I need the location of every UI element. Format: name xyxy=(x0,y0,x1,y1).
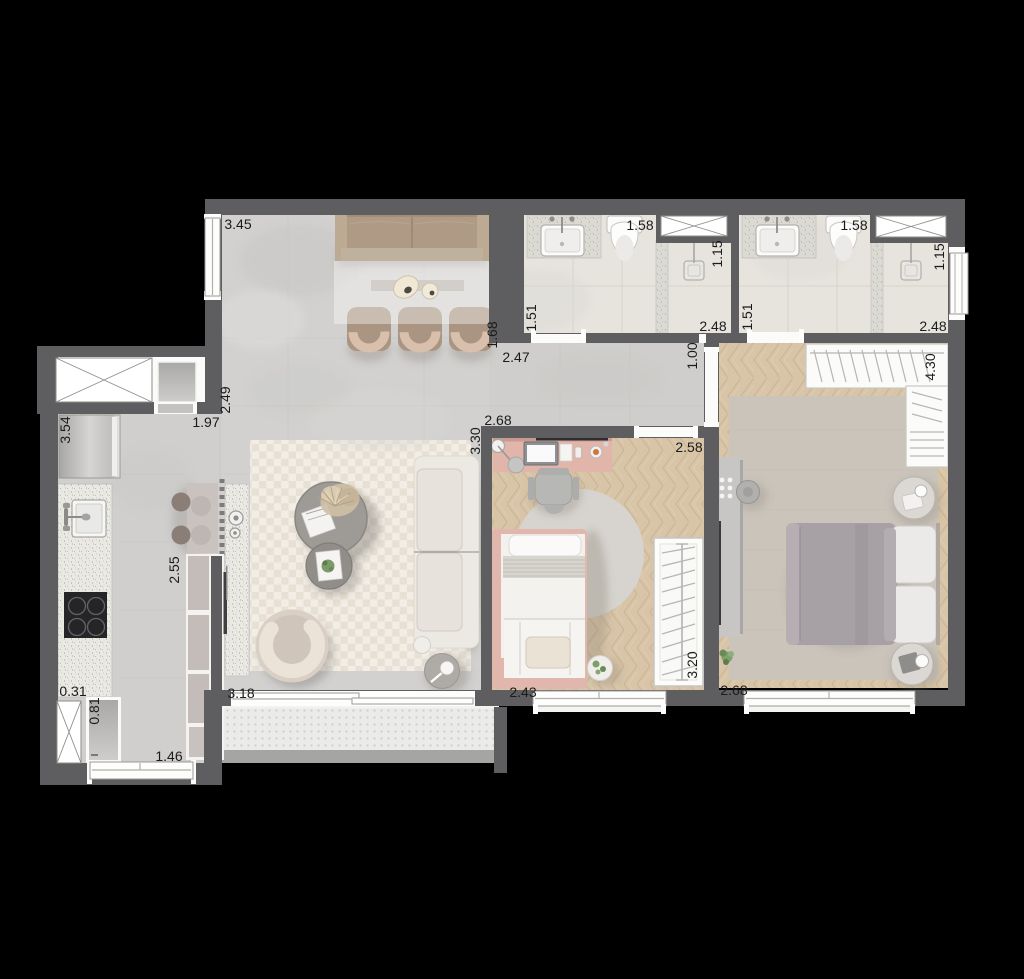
svg-text:2.48: 2.48 xyxy=(699,318,726,334)
svg-text:1.15: 1.15 xyxy=(709,240,725,267)
svg-text:2.68: 2.68 xyxy=(720,682,747,698)
svg-text:2.55: 2.55 xyxy=(166,556,182,583)
svg-text:1.00: 1.00 xyxy=(684,342,700,369)
svg-text:1.58: 1.58 xyxy=(626,217,653,233)
svg-text:1.97: 1.97 xyxy=(192,414,219,430)
svg-text:2.47: 2.47 xyxy=(502,349,529,365)
svg-text:3.54: 3.54 xyxy=(57,416,73,443)
svg-text:3.30: 3.30 xyxy=(467,427,483,454)
svg-text:1.46: 1.46 xyxy=(155,748,182,764)
svg-text:2.49: 2.49 xyxy=(217,386,233,413)
svg-text:3.18: 3.18 xyxy=(227,685,254,701)
svg-text:1.51: 1.51 xyxy=(523,304,539,331)
svg-text:1.68: 1.68 xyxy=(484,321,500,348)
svg-text:0.81: 0.81 xyxy=(86,697,102,724)
svg-text:2.58: 2.58 xyxy=(675,439,702,455)
svg-text:0.31: 0.31 xyxy=(59,683,86,699)
svg-text:1.15: 1.15 xyxy=(931,243,947,270)
svg-text:3.20: 3.20 xyxy=(684,651,700,678)
svg-text:2.68: 2.68 xyxy=(484,412,511,428)
svg-text:2.48: 2.48 xyxy=(919,318,946,334)
svg-text:1.51: 1.51 xyxy=(739,303,755,330)
svg-text:1.58: 1.58 xyxy=(840,217,867,233)
svg-text:4.30: 4.30 xyxy=(922,353,938,380)
svg-text:2.43: 2.43 xyxy=(509,684,536,700)
svg-text:3.45: 3.45 xyxy=(224,216,251,232)
